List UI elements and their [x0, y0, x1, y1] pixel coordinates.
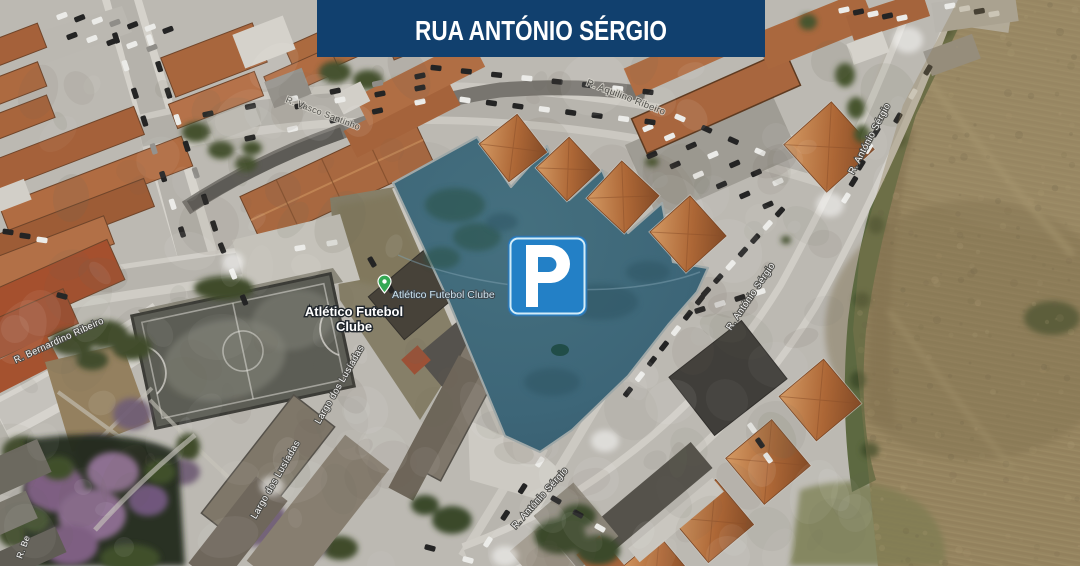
svg-text:RUA ANTÓNIO SÉRGIO: RUA ANTÓNIO SÉRGIO [415, 15, 667, 46]
svg-text:Atlético Futebol: Atlético Futebol [305, 304, 403, 319]
svg-text:Atlético Futebol Clube: Atlético Futebol Clube [392, 289, 495, 301]
svg-text:Clube: Clube [336, 319, 372, 334]
